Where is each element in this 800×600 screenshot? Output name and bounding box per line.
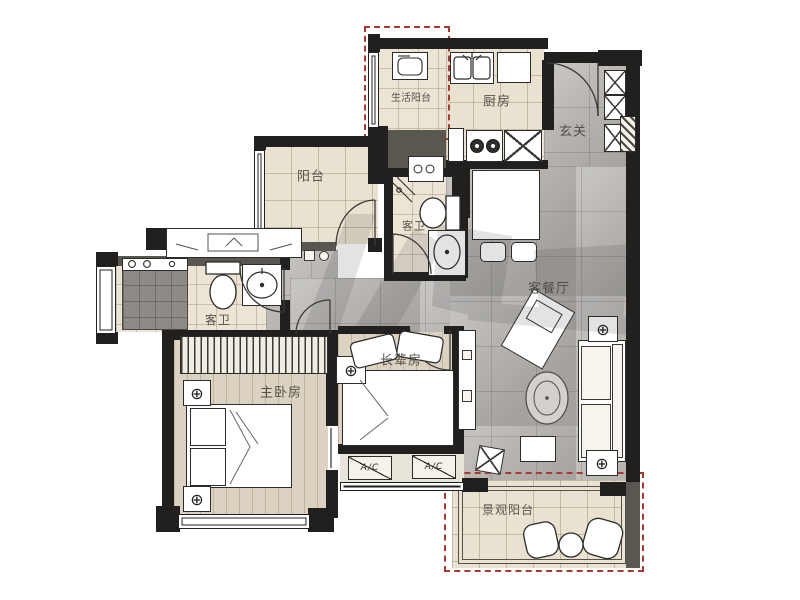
coffee-table <box>520 436 556 462</box>
wall-segment <box>384 176 393 278</box>
fixture-dot <box>319 251 329 261</box>
fixture-icon: ⊕ <box>190 384 203 403</box>
bath-upper-vanity <box>428 230 466 276</box>
wall-segment <box>156 506 180 532</box>
nightstand: ⊕ <box>183 380 211 406</box>
window-ac-platform <box>340 482 464 491</box>
wall-segment <box>260 136 382 147</box>
dining-table <box>472 170 540 240</box>
room-label-kitchen: 厨房 <box>483 95 511 108</box>
room-label-bath-lower: 客卫 <box>205 314 231 326</box>
nightstand: ⊕ <box>336 356 366 384</box>
room-label-foyer: 玄关 <box>559 125 587 138</box>
lounge-chair-cushion <box>526 299 563 333</box>
fixture-icon: ⊕ <box>344 361 357 380</box>
shower-faucet-ledge <box>122 258 188 271</box>
dining-chair <box>480 242 506 262</box>
tv-cabinet-item <box>462 350 472 360</box>
wall-segment <box>462 478 488 492</box>
tv-cabinet-item <box>462 390 472 402</box>
shoe-cabinet-cell <box>604 70 626 95</box>
side-table: ⊕ <box>586 450 618 476</box>
nightstand: ⊕ <box>183 486 211 512</box>
wall-segment <box>326 470 338 518</box>
room-label-elder-room: 长辈房 <box>380 354 422 367</box>
kitchen-counter-unit <box>504 130 542 162</box>
room-label-living-dining: 客餐厅 <box>528 282 570 295</box>
fixture-box <box>304 250 315 261</box>
wall-segment <box>254 136 266 150</box>
ac-label: A/C <box>361 463 379 473</box>
stove <box>466 130 503 162</box>
wall-segment <box>626 482 640 568</box>
room-label-bath-upper: 客卫 <box>402 222 426 233</box>
sofa-cushion <box>581 346 611 400</box>
wall-post <box>368 238 382 252</box>
fixture-icon: ⊕ <box>596 320 609 339</box>
window-master-bedroom <box>178 514 310 529</box>
room-label-view-balcony: 景观阳台 <box>482 504 534 516</box>
pillow <box>190 448 226 486</box>
fridge <box>497 52 531 83</box>
dining-chair <box>511 242 537 262</box>
window-service-balcony <box>368 52 379 128</box>
side-table: ⊕ <box>588 316 618 342</box>
wall-segment <box>600 482 628 496</box>
sofa-back <box>612 344 623 458</box>
room-label-balcony: 阳台 <box>297 170 325 183</box>
entry-door-hatch <box>620 116 636 152</box>
window-bath-lower <box>96 266 116 334</box>
room-label-service-balcony: 生活阳台 <box>391 94 431 104</box>
washing-machine <box>392 52 428 80</box>
tv-cabinet <box>458 330 476 430</box>
plant-stand <box>475 445 505 475</box>
wall-segment <box>542 60 554 130</box>
room-label-master-bedroom: 主卧房 <box>260 386 302 399</box>
wall-segment <box>162 340 174 516</box>
shower-area <box>122 268 188 330</box>
wall-segment <box>338 326 410 334</box>
ac-unit: A/C <box>412 455 456 479</box>
view-balcony-glazing <box>458 486 626 564</box>
wall-column <box>452 166 470 218</box>
wall-segment <box>626 172 640 482</box>
flower-box <box>166 228 302 258</box>
floor-plan: ⊕ ⊕ ⊕ A/C A/C ⊕ ⊕ <box>0 0 800 600</box>
wall-segment <box>96 252 118 266</box>
kitchen-sink <box>450 52 494 84</box>
bath-lower-vanity <box>242 264 282 306</box>
fixture-icon: ⊕ <box>190 490 203 509</box>
fixture-icon: ⊕ <box>595 454 608 473</box>
water-heater <box>408 156 444 182</box>
kitchen-cabinet <box>448 128 464 162</box>
wardrobe <box>180 336 328 374</box>
ac-unit: A/C <box>348 456 392 480</box>
wall-segment <box>378 38 548 49</box>
wall-segment <box>146 228 166 250</box>
pillow <box>190 408 226 446</box>
ac-label: A/C <box>425 462 443 472</box>
